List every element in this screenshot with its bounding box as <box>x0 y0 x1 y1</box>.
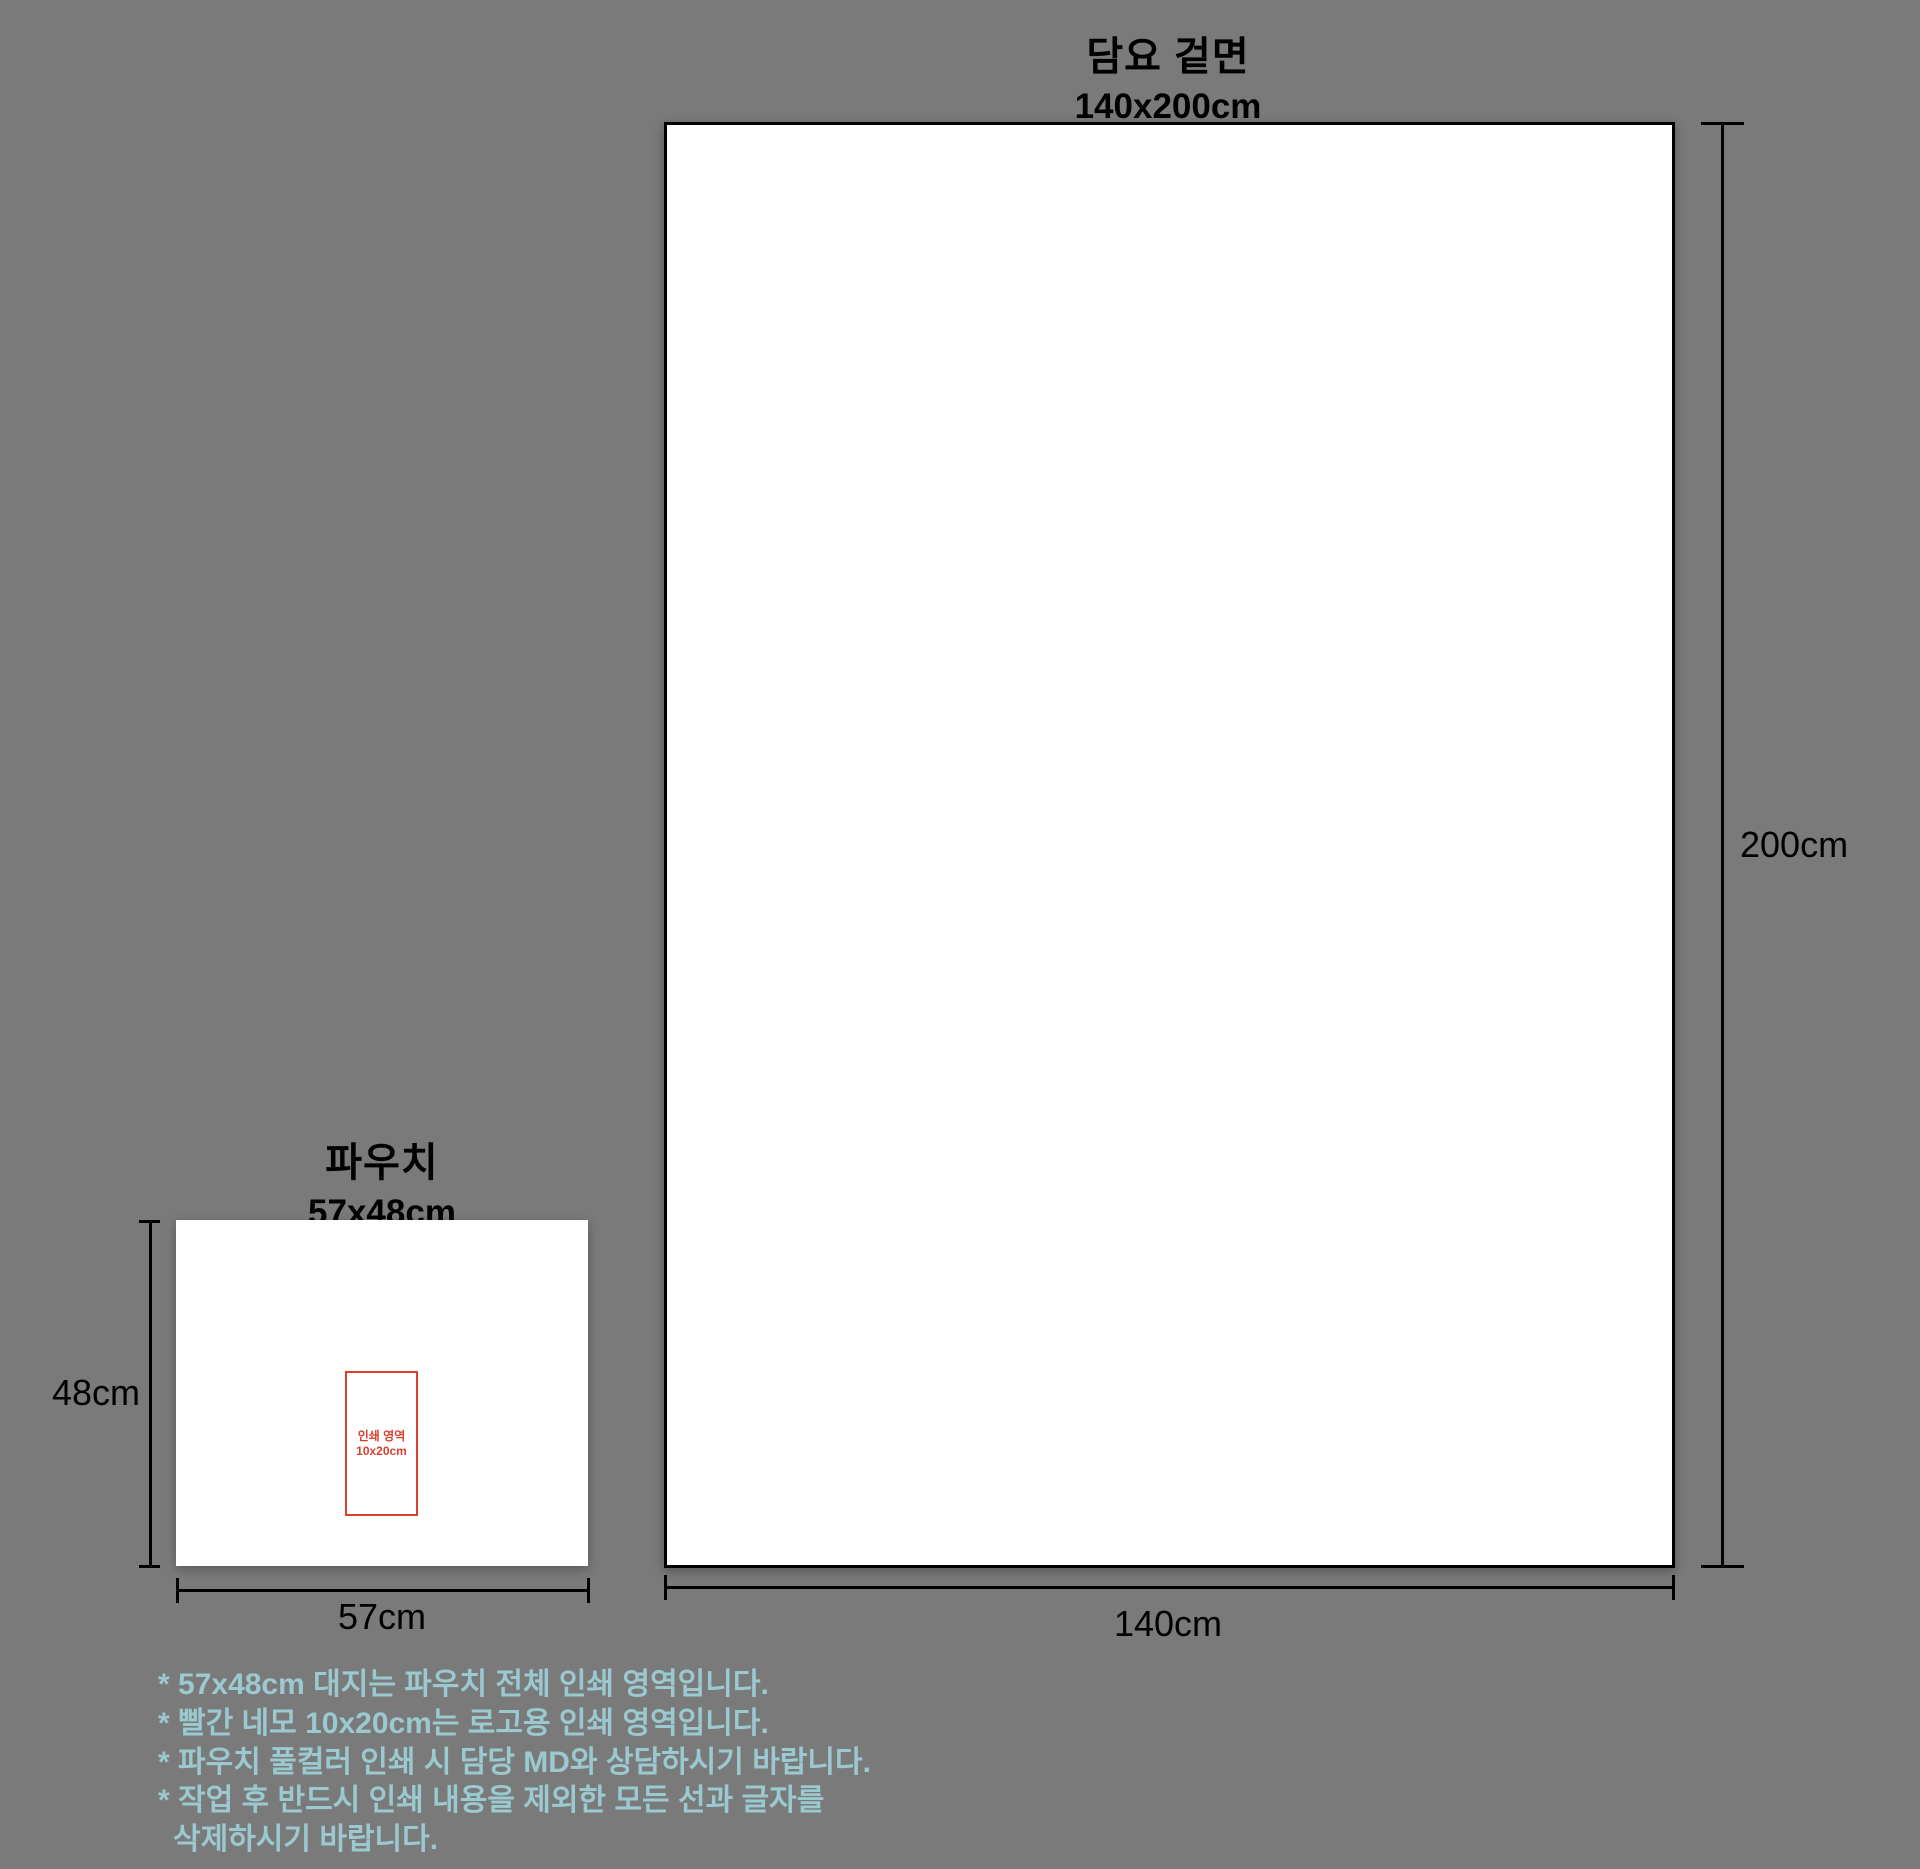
blanket-size-label: 140x200cm <box>968 87 1368 127</box>
blanket-height-dimension-line <box>1721 122 1724 1568</box>
pouch-title: 파우치 <box>232 1130 532 1188</box>
blanket-artboard <box>664 122 1675 1568</box>
note-line: 삭제하시기 바랍니다. <box>158 1821 871 1860</box>
note-line: * 빨간 네모 10x20cm는 로고용 인쇄 영역입니다. <box>158 1705 871 1744</box>
instruction-notes: * 57x48cm 대지는 파우치 전체 인쇄 영역입니다. * 빨간 네모 1… <box>158 1666 871 1860</box>
pouch-height-dimension-top-cap <box>139 1220 160 1223</box>
print-area-label-line2: 10x20cm <box>356 1444 407 1459</box>
pouch-width-dimension-right-cap <box>587 1578 590 1603</box>
pouch-width-dimension-line <box>176 1589 590 1592</box>
pouch-logo-print-area: 인쇄 영역 10x20cm <box>345 1371 418 1516</box>
blanket-width-dimension-left-cap <box>664 1575 667 1600</box>
note-line: * 작업 후 반드시 인쇄 내용을 제외한 모든 선과 글자를 <box>158 1782 871 1821</box>
note-line: * 파우치 풀컬러 인쇄 시 담당 MD와 상담하시기 바랍니다. <box>158 1744 871 1783</box>
pouch-height-dimension-line <box>149 1220 152 1568</box>
print-area-label-line1: 인쇄 영역 <box>356 1429 407 1444</box>
blanket-height-dimension-bottom-cap <box>1701 1565 1744 1568</box>
pouch-width-dimension-left-cap <box>176 1578 179 1603</box>
blanket-header: 담요 겉면 140x200cm <box>968 24 1368 127</box>
note-line: * 57x48cm 대지는 파우치 전체 인쇄 영역입니다. <box>158 1666 871 1705</box>
pouch-width-label: 57cm <box>282 1596 482 1638</box>
blanket-height-dimension-top-cap <box>1701 122 1744 125</box>
pouch-height-label: 48cm <box>20 1372 140 1414</box>
blanket-width-label: 140cm <box>1068 1603 1268 1645</box>
pouch-header: 파우치 57x48cm <box>232 1130 532 1233</box>
blanket-title: 담요 겉면 <box>968 24 1368 82</box>
pouch-height-dimension-bottom-cap <box>139 1565 160 1568</box>
blanket-width-dimension-line <box>664 1586 1675 1589</box>
pouch-logo-print-area-text: 인쇄 영역 10x20cm <box>356 1429 407 1459</box>
blanket-width-dimension-right-cap <box>1672 1575 1675 1600</box>
blanket-height-label: 200cm <box>1740 824 1848 866</box>
